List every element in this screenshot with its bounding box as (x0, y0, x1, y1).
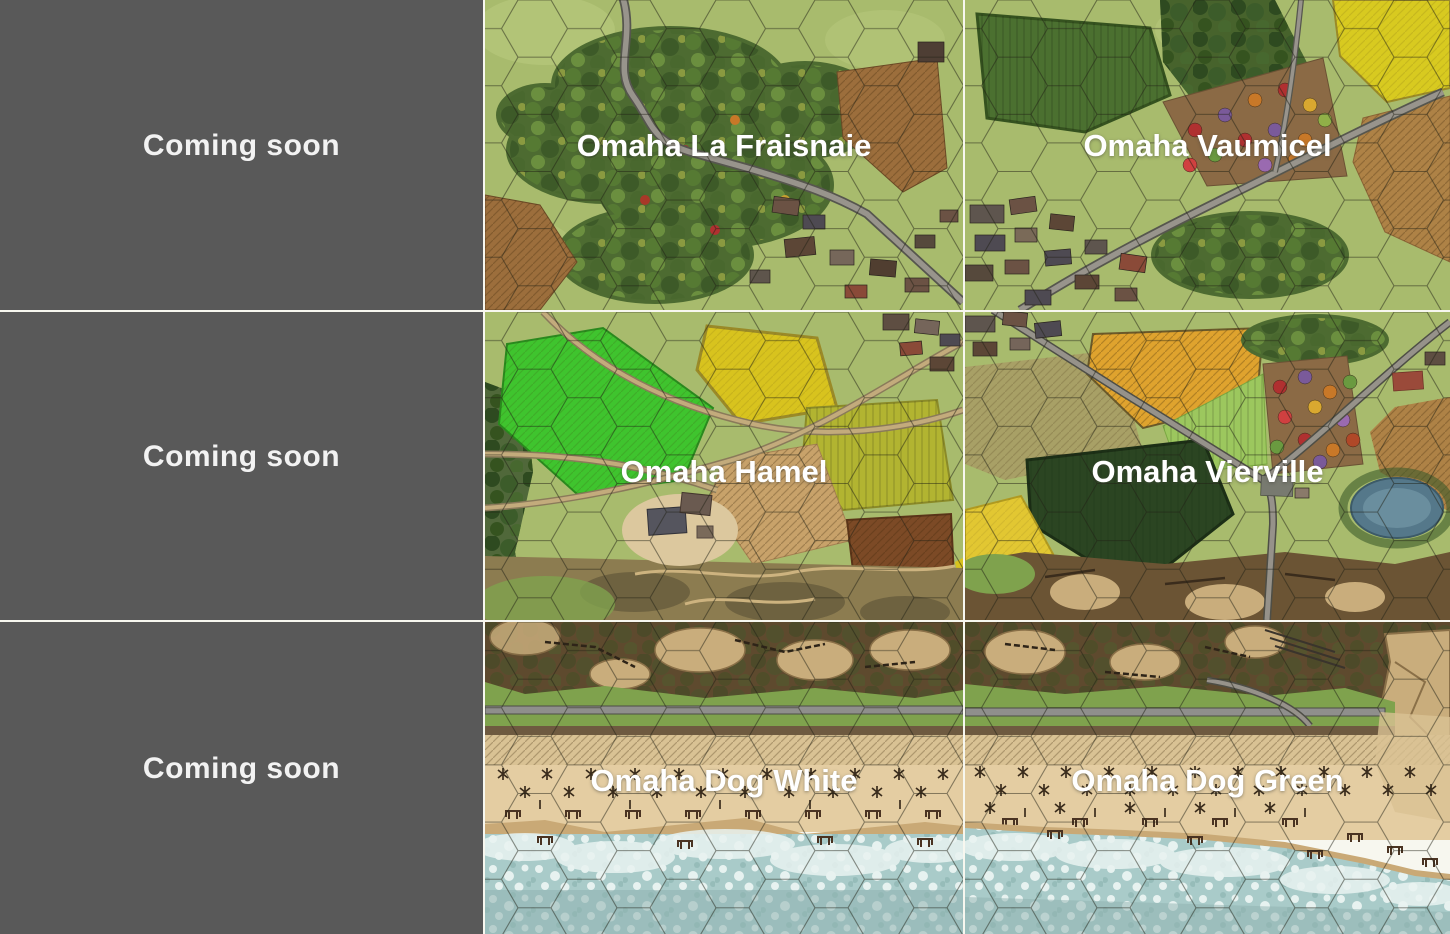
map-tile-la-fraisnaie[interactable]: Omaha La Fraisnaie (485, 0, 963, 310)
placeholder-tile-3: Coming soon (0, 622, 483, 934)
hex-grid-overlay (965, 0, 1450, 310)
map-tile-hamel[interactable]: Omaha Hamel (485, 312, 963, 620)
coming-soon-label: Coming soon (0, 129, 483, 163)
hex-grid-overlay (485, 0, 963, 310)
map-art-hamel (485, 312, 963, 620)
hex-grid-overlay (965, 622, 1450, 934)
map-tile-vaumicel[interactable]: Omaha Vaumicel (965, 0, 1450, 310)
map-gallery-grid: Coming soon (0, 0, 1450, 934)
map-tile-dog-white[interactable]: Omaha Dog White (485, 622, 963, 934)
placeholder-tile-2: Coming soon (0, 312, 483, 620)
map-art-dog-white (485, 622, 963, 934)
hex-grid-overlay (485, 312, 963, 620)
hex-grid-overlay (485, 622, 963, 934)
placeholder-tile-1: Coming soon (0, 0, 483, 310)
map-tile-vierville[interactable]: Omaha Vierville (965, 312, 1450, 620)
map-art-vaumicel (965, 0, 1450, 310)
map-art-la-fraisnaie (485, 0, 963, 310)
map-art-vierville (965, 312, 1450, 620)
hex-grid-overlay (965, 312, 1450, 620)
map-art-dog-green (965, 622, 1450, 934)
coming-soon-label: Coming soon (0, 440, 483, 474)
map-tile-dog-green[interactable]: Omaha Dog Green (965, 622, 1450, 934)
coming-soon-label: Coming soon (0, 752, 483, 786)
